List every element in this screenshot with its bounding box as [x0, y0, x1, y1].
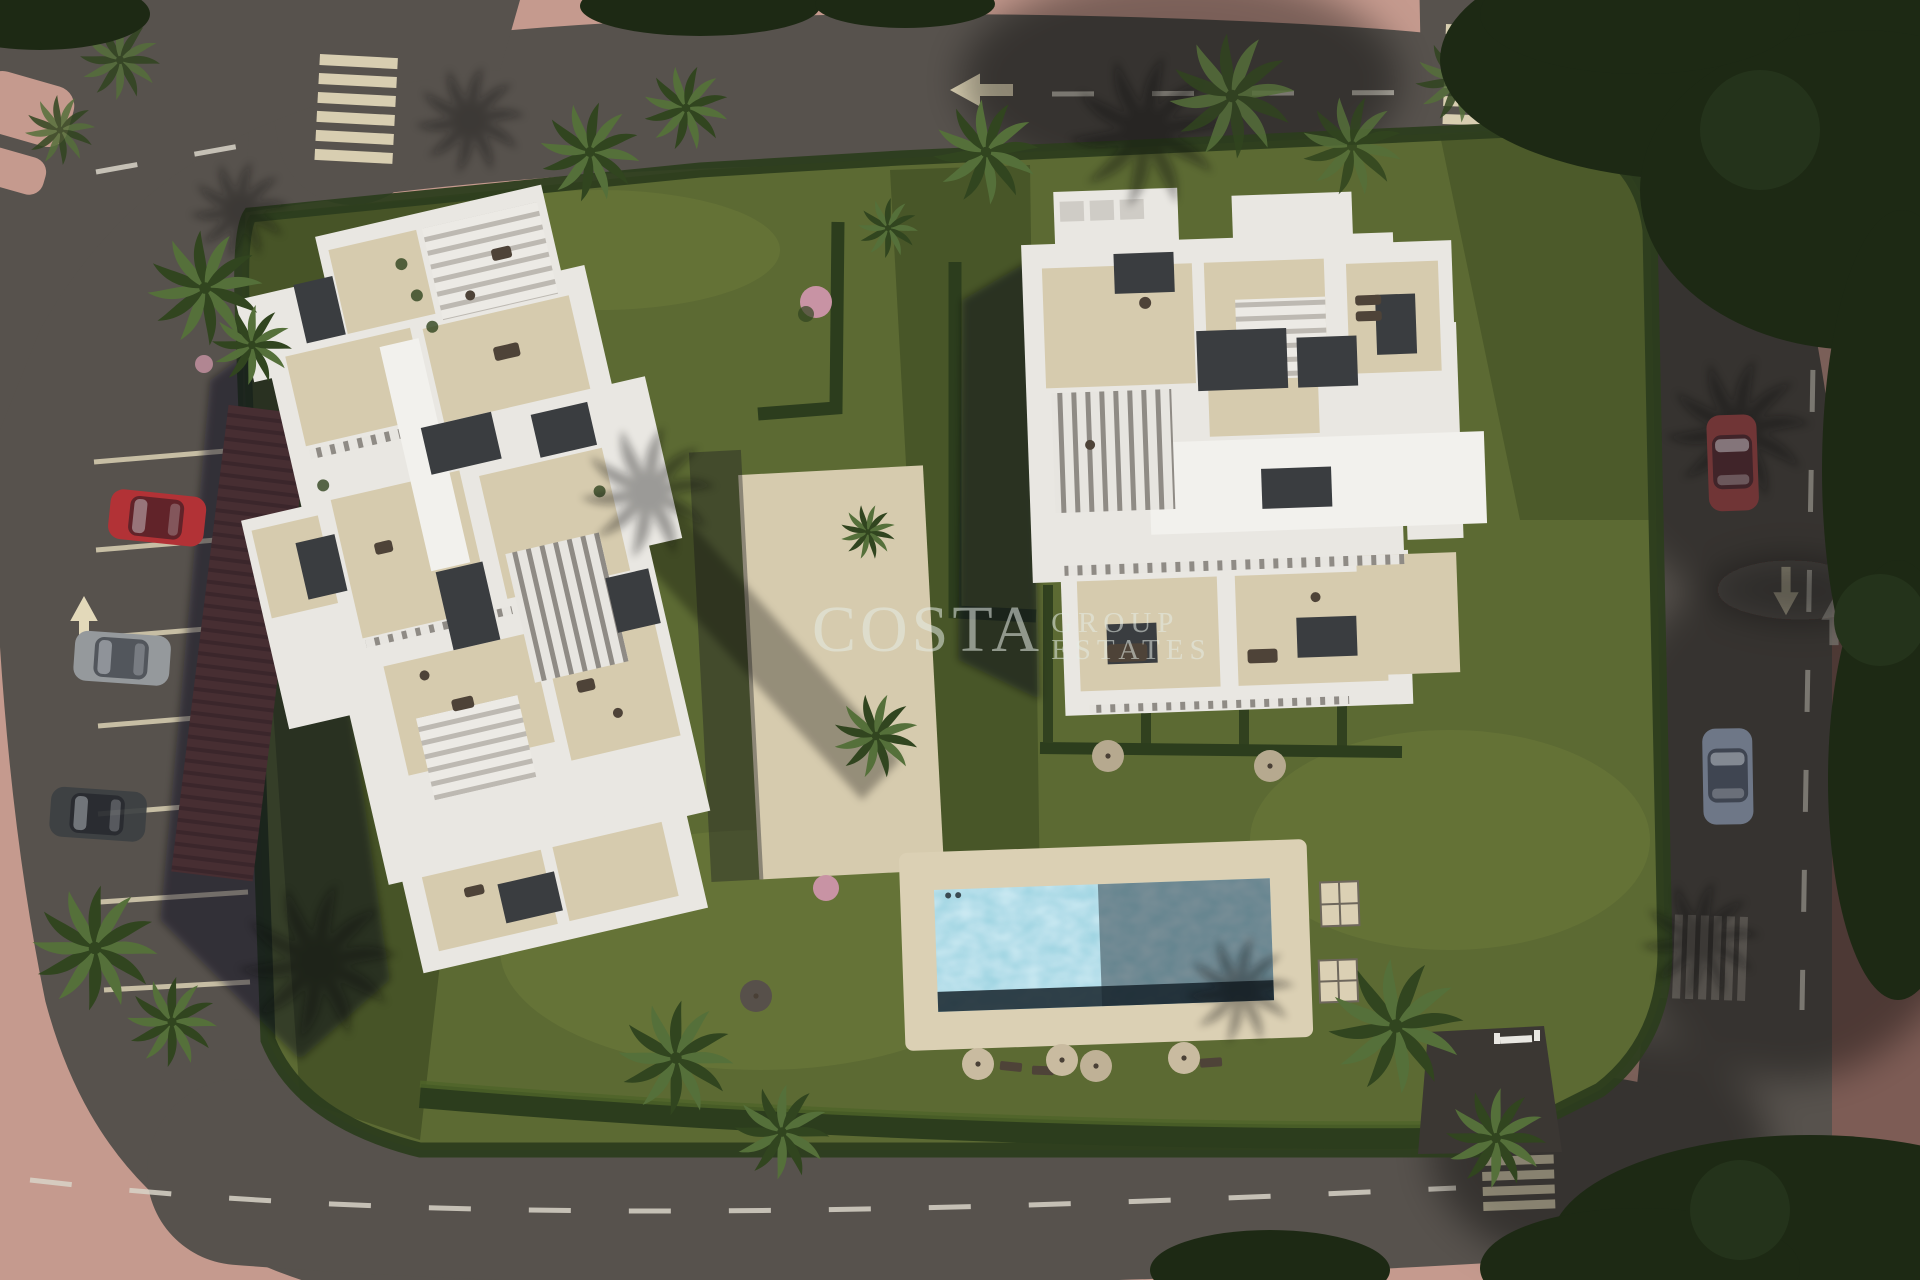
right-apartment-building [1019, 177, 1493, 717]
central-plaza-path [689, 440, 944, 882]
aerial-render: COSTA GROUP ESTATES [0, 0, 1920, 1280]
car-blue-gray [1702, 728, 1754, 825]
car-silver [73, 630, 172, 687]
render-canvas [0, 0, 1920, 1280]
car-maroon [1706, 414, 1759, 512]
pool-area [899, 837, 1364, 1051]
car-dark [49, 786, 148, 843]
car-red [107, 488, 208, 548]
